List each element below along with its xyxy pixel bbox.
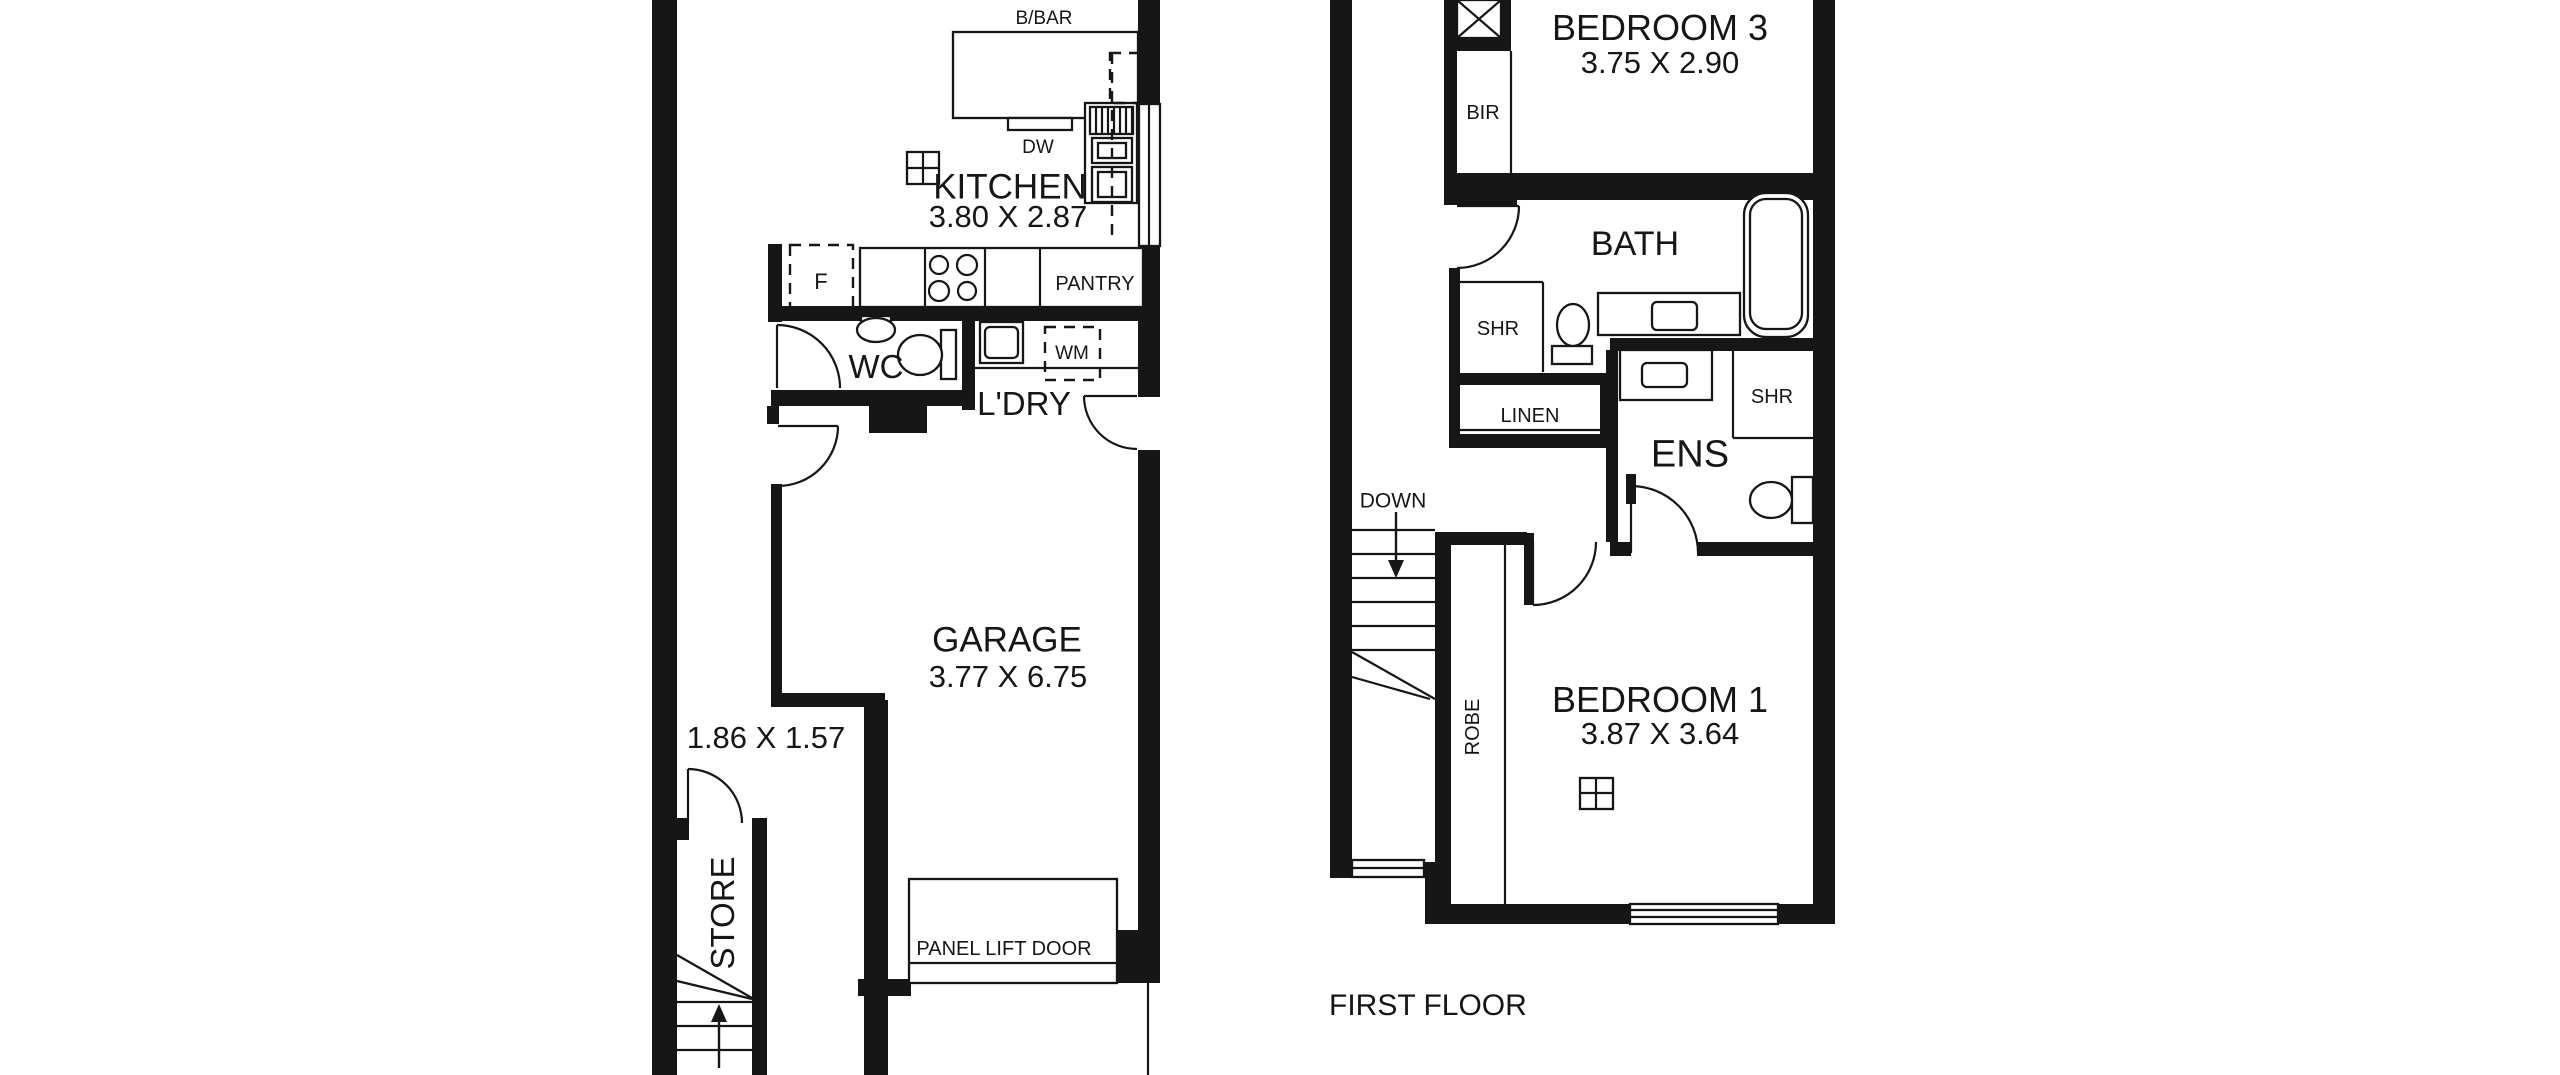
wall — [771, 484, 782, 700]
wall — [1456, 373, 1606, 385]
room-label-bedroom3: BEDROOM 3 — [1552, 7, 1768, 48]
room-label-store: STORE — [704, 856, 741, 969]
room-label-garage: GARAGE — [932, 621, 1082, 660]
label-breakfast-bar: B/BAR — [1015, 8, 1072, 29]
wall — [767, 406, 779, 424]
wall — [1449, 268, 1460, 448]
wall — [771, 390, 967, 406]
room-label-wc: WC — [849, 348, 904, 385]
wall — [752, 818, 767, 1075]
wall — [869, 406, 927, 433]
dishwasher — [1008, 118, 1072, 130]
bath-cistern — [1552, 346, 1592, 364]
wc-toilet-bowl — [898, 335, 942, 375]
bathtub-inner — [1750, 199, 1802, 329]
room-label-bedroom1: BEDROOM 1 — [1552, 679, 1768, 720]
dims-store: 1.86 X 1.57 — [687, 720, 846, 755]
label-shower-bath: SHR — [1477, 318, 1519, 340]
wall — [1813, 0, 1835, 924]
label-bir: BIR — [1466, 102, 1499, 124]
floor-title-first-floor: FIRST FLOOR — [1329, 989, 1527, 1022]
dims-kitchen: 3.80 X 2.87 — [929, 199, 1088, 234]
wall — [652, 0, 677, 1075]
wall — [1330, 0, 1352, 878]
wall — [768, 306, 1140, 321]
label-robe: ROBE — [1462, 699, 1484, 756]
label-linen: LINEN — [1501, 405, 1560, 427]
dims-garage: 3.77 X 6.75 — [929, 659, 1088, 694]
dims-bedroom3: 3.75 X 2.90 — [1581, 45, 1740, 80]
label-shower-ens: SHR — [1751, 386, 1793, 408]
wall — [858, 979, 911, 996]
bedroom1-window — [1630, 904, 1778, 924]
label-panel-lift-door: PANEL LIFT DOOR — [916, 938, 1091, 960]
wall — [1778, 904, 1835, 924]
cooktop-burner — [958, 282, 976, 300]
wall — [1435, 532, 1527, 545]
wc-cistern — [941, 330, 956, 379]
wall — [1117, 930, 1160, 983]
wall — [1697, 542, 1813, 556]
ens-cistern — [1792, 477, 1813, 523]
bath-toilet-bowl — [1557, 304, 1589, 346]
room-label-bath: BATH — [1591, 225, 1679, 263]
wall — [1610, 542, 1631, 556]
label-stairs-down: DOWN — [1360, 490, 1427, 513]
bath-sink — [1652, 302, 1697, 330]
floor-plan-svg: B/BARDWKITCHEN3.80 X 2.87FPANTRYWCWML'DR… — [0, 0, 2560, 1075]
dims-bedroom1: 3.87 X 3.64 — [1581, 716, 1740, 751]
wall — [864, 700, 888, 1075]
ens-sink — [1642, 363, 1687, 387]
ens-toilet-bowl — [1750, 482, 1792, 518]
wall — [1455, 434, 1606, 448]
wall — [1425, 904, 1630, 924]
wall — [1138, 450, 1160, 930]
room-label-ens: ENS — [1651, 434, 1729, 476]
wall — [1450, 185, 1517, 205]
label-pantry: PANTRY — [1055, 273, 1134, 295]
panel-lift-door — [909, 879, 1117, 983]
label-dishwasher: DW — [1022, 137, 1054, 158]
laundry-tub-inner — [985, 327, 1018, 358]
plan-background — [0, 0, 2560, 1075]
wall — [1451, 38, 1511, 51]
wall — [1138, 0, 1160, 106]
wc-basin — [857, 318, 895, 342]
label-washing-machine: WM — [1055, 343, 1089, 364]
wall — [1501, 0, 1511, 38]
wall — [1606, 350, 1618, 542]
cooktop-burner — [930, 256, 948, 274]
label-fridge: F — [814, 269, 827, 294]
room-label-laundry: L'DRY — [977, 385, 1071, 422]
cooktop-burner — [957, 255, 977, 275]
cooktop-burner — [929, 281, 949, 301]
floor-plan-page: B/BARDWKITCHEN3.80 X 2.87FPANTRYWCWML'DR… — [0, 0, 2560, 1075]
